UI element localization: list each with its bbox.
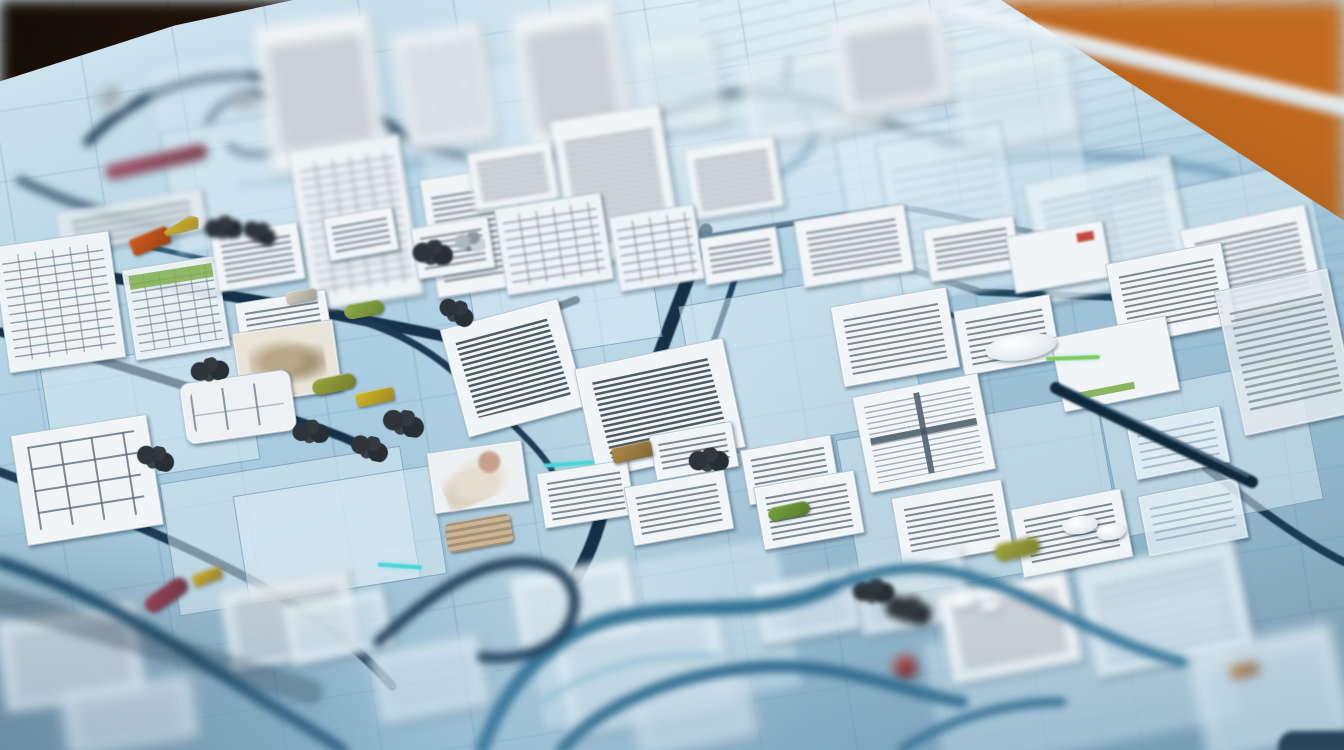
route-line (1060, 384, 1248, 476)
route-line (832, 568, 1182, 662)
dark-object-bottom-right (1278, 731, 1344, 750)
blueprint-photo-scene (0, 0, 1344, 750)
route-line (378, 562, 575, 658)
route-line (902, 702, 1062, 750)
route-lines-over (0, 0, 1344, 750)
route-line (0, 600, 310, 692)
route-line (1056, 388, 1252, 482)
route-line (562, 666, 962, 750)
